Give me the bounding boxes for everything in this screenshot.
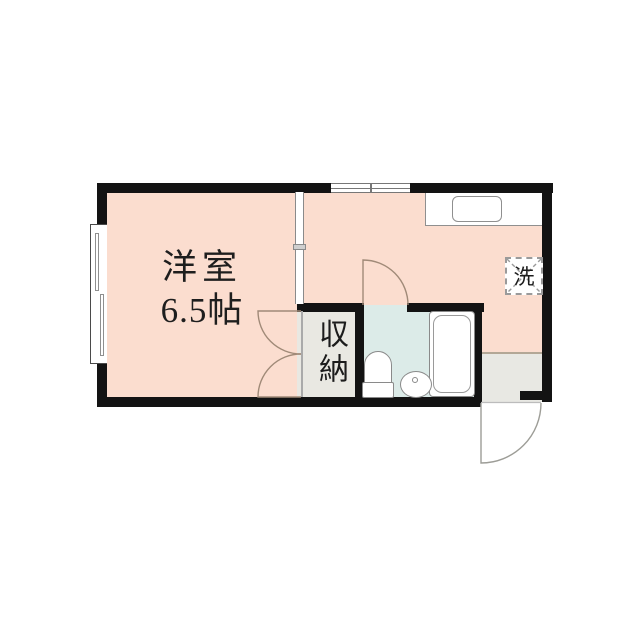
wash-basin <box>400 371 432 398</box>
toilet-bowl <box>364 351 392 384</box>
western-room-label: 洋室 <box>117 247 287 290</box>
bathtub-inner-outline <box>433 315 471 393</box>
wall-closet-top <box>297 303 363 312</box>
wall-bottom <box>97 397 481 407</box>
sliding-partition-handle <box>293 244 306 250</box>
kitchen-sink <box>452 196 502 222</box>
floor-plan: 洗 洋室 6.5帖 収納 <box>0 0 640 640</box>
closet-door-jamb <box>301 311 303 397</box>
wall-entry-stub <box>520 391 552 400</box>
wall-bathroom-right <box>474 303 482 402</box>
top-window-mullion <box>370 183 372 193</box>
laundry-label: 洗 <box>507 259 541 293</box>
western-room-area: 6.5帖 <box>117 290 287 333</box>
wash-basin-faucet <box>412 377 418 383</box>
left-window-pane <box>100 294 104 356</box>
bathtub <box>429 311 475 397</box>
western-room-label-block: 洋室 6.5帖 <box>117 247 287 332</box>
wall-top-right-segment <box>410 183 553 193</box>
toilet-tank <box>362 382 394 398</box>
closet-label: 収納 <box>312 314 348 392</box>
entry-door-swing <box>481 403 541 463</box>
wall-left-upper-segment <box>97 183 107 227</box>
left-window-pane <box>95 233 99 291</box>
wall-right <box>542 183 552 402</box>
washing-machine-space: 洗 <box>505 257 543 295</box>
